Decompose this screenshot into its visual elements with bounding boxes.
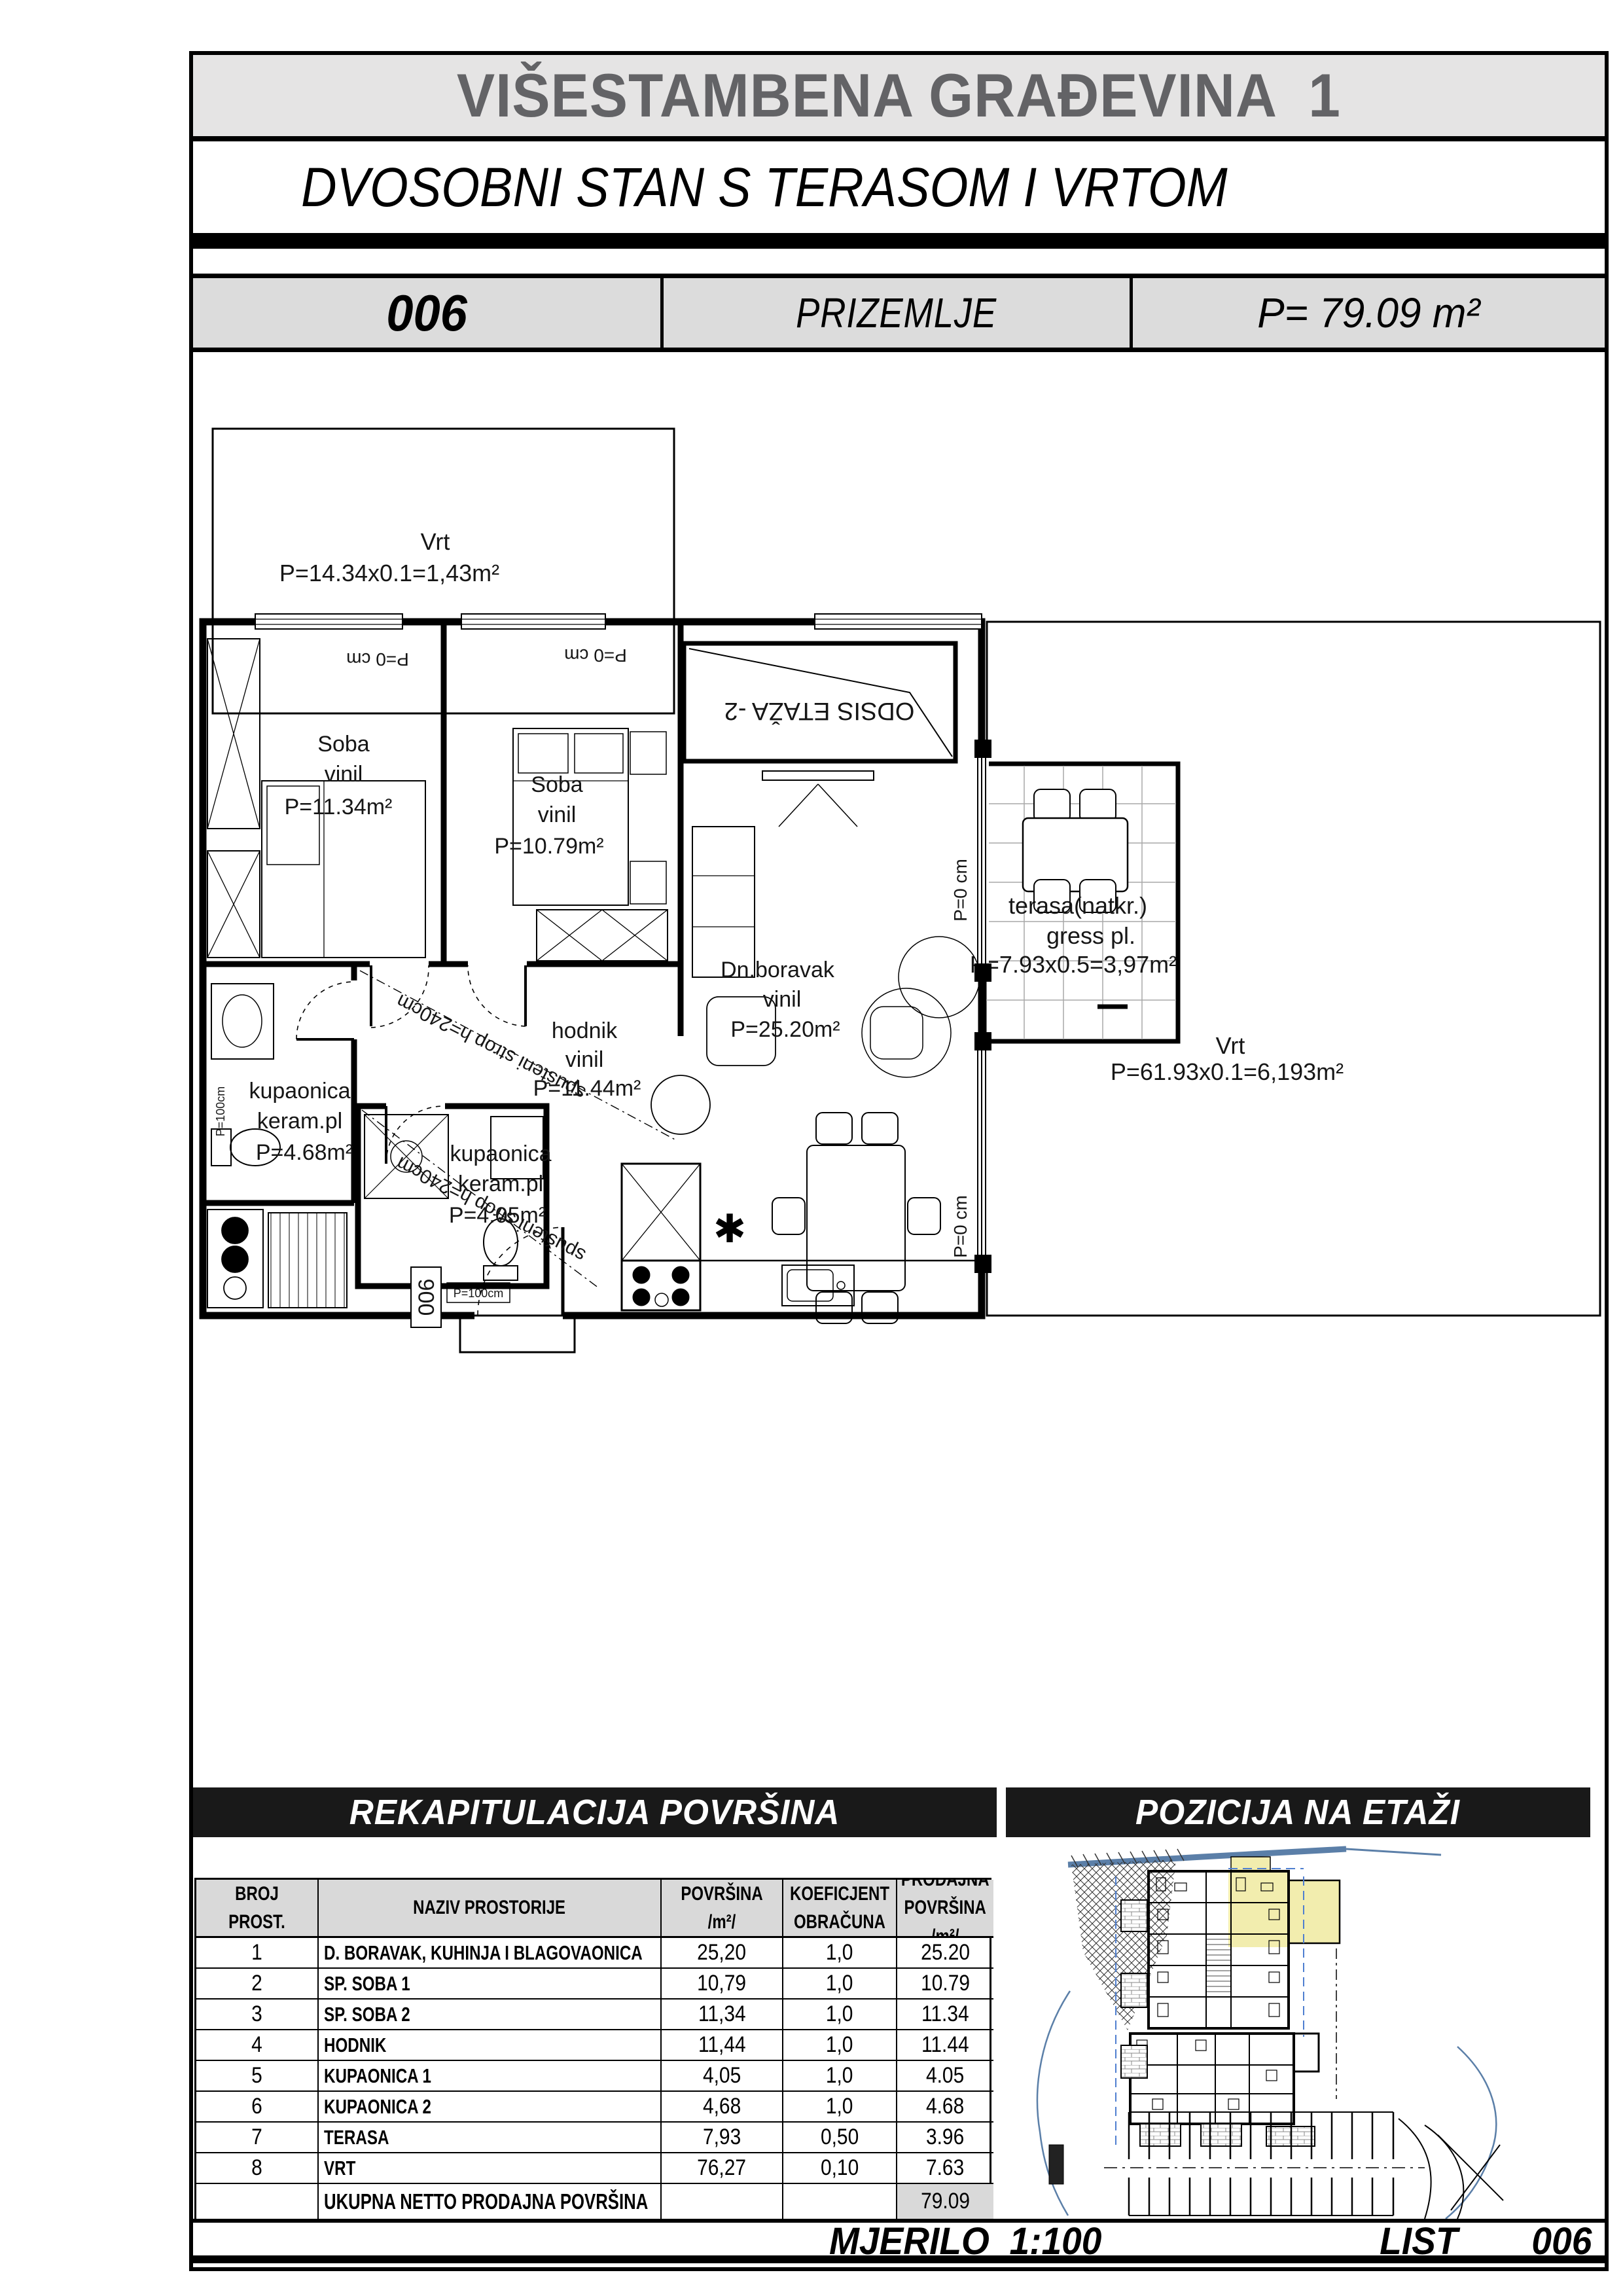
floor-cell: PRIZEMLJE xyxy=(660,278,1133,348)
row-num: 3 xyxy=(196,2000,319,2030)
row-coef: 0,50 xyxy=(783,2123,897,2153)
boiler-symbol: ✱ xyxy=(713,1207,746,1251)
total-empty-coef xyxy=(783,2184,897,2219)
apartment-type-title: DVOSOBNI STAN S TERASOM I VRTOM xyxy=(301,156,1228,219)
col-header-koeficjent: KOEFICJENT OBRAČUNA xyxy=(783,1880,897,1938)
row-name: HODNIK xyxy=(319,2030,662,2061)
drawing-sheet: VIŠESTAMBENA GRAĐEVINA 1 DVOSOBNI STAN S… xyxy=(0,0,1623,2296)
sheet-number: 006 xyxy=(1532,2219,1592,2263)
stair-ramp-box: ODSIS ETAŽA -2 xyxy=(684,643,955,761)
p0-terrace-door: P=0 cm xyxy=(950,859,971,922)
terrace-calc: P=7.93x0.5=3,97m² xyxy=(970,951,1177,978)
bedroom1-floor: vinil xyxy=(325,762,363,787)
entry-label-text: 006 xyxy=(414,1279,439,1316)
floor-name: PRIZEMLJE xyxy=(796,289,997,337)
site-access-lines xyxy=(1336,1948,1503,2219)
row-name: SP. SOBA 2 xyxy=(319,2000,662,2030)
row-area: 10,79 xyxy=(662,1969,783,2000)
row-name: KUPAONICA 1 xyxy=(319,2061,662,2092)
col-header-povrsina: POVRŠINA /m²/ xyxy=(662,1880,783,1938)
row-num: 8 xyxy=(196,2153,319,2184)
total-label-cell: UKUPNA NETTO PRODAJNA POVRŠINA xyxy=(319,2184,662,2219)
unit-number: 006 xyxy=(386,283,467,343)
row-name: D. BORAVAK, KUHINJA I BLAGOVAONICA xyxy=(319,1938,662,1969)
row-coef: 1,0 xyxy=(783,1938,897,1969)
row-sale: 10.79 xyxy=(897,1969,993,2000)
position-title: POZICIJA NA ETAŽI xyxy=(1136,1792,1461,1833)
row-coef: 1,0 xyxy=(783,2092,897,2123)
bath2-label: kupaonica xyxy=(450,1141,551,1166)
row-sale: 3.96 xyxy=(897,2123,993,2153)
col-header-broj: BROJ PROST. xyxy=(196,1880,319,1938)
row-area: 25,20 xyxy=(662,1938,783,1969)
window-top-3 xyxy=(815,614,982,629)
garden-right-calc: P=61.93x0.1=6,193m² xyxy=(1111,1058,1344,1085)
row-sale: 7.63 xyxy=(897,2153,993,2184)
footer-bar: MJERILO 1:100 LIST 006 xyxy=(193,2219,1605,2263)
total-value-cell: 79.09 xyxy=(897,2184,993,2219)
p0-garden-door: P=0 cm xyxy=(950,1195,971,1258)
hall-area: P=11.44m² xyxy=(533,1076,641,1101)
bedroom2-area: P=10.79m² xyxy=(494,834,603,859)
row-num: 5 xyxy=(196,2061,319,2092)
row-area: 4,05 xyxy=(662,2061,783,2092)
row-coef: 1,0 xyxy=(783,2000,897,2030)
terrace: terasa(natkr.) gress pl. P=7.93x0.5=3,97… xyxy=(970,764,1178,1041)
row-area: 76,27 xyxy=(662,2153,783,2184)
garden-top-calc: P=14.34x0.1=1,43m² xyxy=(279,560,499,586)
sliding-door-garden xyxy=(974,1032,991,1273)
row-sale: 11.34 xyxy=(897,2000,993,2030)
floor-plan: Vrt P=14.34x0.1=1,43m² Vrt P=61.93x0.1=6… xyxy=(193,352,1605,1787)
recap-header-bar: REKAPITULACIJA POVRŠINA xyxy=(193,1787,997,1837)
hall-floor: vinil xyxy=(565,1047,604,1072)
p0-window2: P=0 cm xyxy=(564,645,627,666)
row-num: 7 xyxy=(196,2123,319,2153)
terrace-floor: gress pl. xyxy=(1046,922,1135,949)
building-title: VIŠESTAMBENA GRAĐEVINA 1 xyxy=(457,60,1341,131)
row-area: 4,68 xyxy=(662,2092,783,2123)
bath2-area: P=4.05m² xyxy=(449,1203,546,1228)
row-num: 2 xyxy=(196,1969,319,2000)
total-area: P= 79.09 m² xyxy=(1258,289,1480,337)
row-num: 1 xyxy=(196,1938,319,1969)
col-header-naziv: NAZIV PROSTORIJE xyxy=(319,1880,662,1938)
bath1-label: kupaonica xyxy=(249,1079,350,1103)
living-floor: vinil xyxy=(763,987,802,1012)
row-coef: 1,0 xyxy=(783,1969,897,2000)
sheet-frame: VIŠESTAMBENA GRAĐEVINA 1 DVOSOBNI STAN S… xyxy=(189,51,1609,2271)
sheet-subtitle-bar: DVOSOBNI STAN S TERASOM I VRTOM xyxy=(193,141,1605,233)
divider-band xyxy=(193,233,1605,249)
total-area-cell: P= 79.09 m² xyxy=(1133,278,1605,348)
living-label: Dn.boravak xyxy=(721,958,835,982)
unit-number-cell: 006 xyxy=(193,278,660,348)
row-name: SP. SOBA 1 xyxy=(319,1969,662,2000)
recap-title: REKAPITULACIJA POVRŠINA xyxy=(349,1792,840,1833)
mini-site-plan xyxy=(1006,1837,1590,2219)
bath1-area: P=4.68m² xyxy=(256,1140,353,1165)
living-area: P=25.20m² xyxy=(730,1017,840,1042)
garden-top-label: Vrt xyxy=(421,528,450,555)
sheet-block: LIST 006 xyxy=(1378,2223,1594,2259)
row-coef: 1,0 xyxy=(783,2061,897,2092)
total-row-empty xyxy=(196,2184,319,2219)
row-num: 6 xyxy=(196,2092,319,2123)
window-top-1 xyxy=(255,614,402,629)
sheet-title-bar: VIŠESTAMBENA GRAĐEVINA 1 xyxy=(193,55,1605,141)
sheet-label: LIST xyxy=(1380,2219,1457,2263)
unit-info-row: 006 PRIZEMLJE P= 79.09 m² xyxy=(193,274,1605,352)
building-lower-block xyxy=(1130,2034,1319,2124)
entry-unit-label: 006 xyxy=(411,1267,441,1327)
row-area: 11,34 xyxy=(662,2000,783,2030)
tv-cabinet xyxy=(762,771,874,827)
bedroom1-area: P=11.34m² xyxy=(285,795,393,819)
bedroom2-label: Soba xyxy=(531,772,582,797)
row-name: TERASA xyxy=(319,2123,662,2153)
row-sale: 4.05 xyxy=(897,2061,993,2092)
scale-label: MJERILO 1:100 xyxy=(829,2219,1101,2263)
row-coef: 0,10 xyxy=(783,2153,897,2184)
bedroom2-floor: vinil xyxy=(538,802,577,827)
garden-right-label: Vrt xyxy=(1216,1032,1245,1059)
bath1-floor: keram.pl xyxy=(257,1109,342,1134)
bath2-height-note: P=100cm xyxy=(454,1287,504,1300)
hall-label: hodnik xyxy=(552,1018,618,1043)
total-empty-area xyxy=(662,2184,783,2219)
dining-table xyxy=(772,1113,940,1323)
row-coef: 1,0 xyxy=(783,2030,897,2061)
stair-label: ODSIS ETAŽA -2 xyxy=(724,697,915,725)
window-top-2 xyxy=(461,614,605,629)
bedroom1-label: Soba xyxy=(317,732,369,757)
col-header-prodajna: PRODAJNA POVRŠINA /m²/ xyxy=(897,1880,993,1938)
p0-window1: P=0 cm xyxy=(346,649,409,670)
row-sale: 4.68 xyxy=(897,2092,993,2123)
row-area: 11,44 xyxy=(662,2030,783,2061)
bath1-height-note: P=100cm xyxy=(214,1086,227,1137)
terrace-label: terasa(natkr.) xyxy=(1008,892,1147,919)
row-name: KUPAONICA 2 xyxy=(319,2092,662,2123)
highlight-garden xyxy=(1289,1880,1340,1943)
row-sale: 25.20 xyxy=(897,1938,993,1969)
row-name: VRT xyxy=(319,2153,662,2184)
row-area: 7,93 xyxy=(662,2123,783,2153)
kitchen xyxy=(622,1164,982,1310)
row-sale: 11.44 xyxy=(897,2030,993,2061)
recap-table: BROJ PROST. NAZIV PROSTORIJE POVRŠINA /m… xyxy=(194,1878,991,2221)
scale-block: MJERILO 1:100 xyxy=(704,2223,1227,2259)
row-num: 4 xyxy=(196,2030,319,2061)
bath2-floor: keram.pl xyxy=(458,1172,543,1196)
position-header-bar: POZICIJA NA ETAŽI xyxy=(1006,1787,1590,1837)
